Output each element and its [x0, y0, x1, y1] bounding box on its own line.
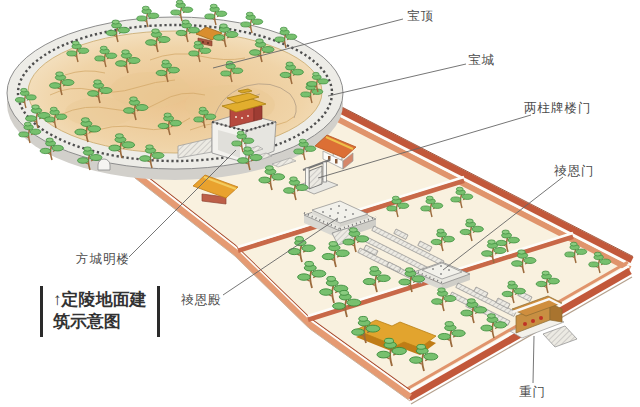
caption-line1: ↑定陵地面建 [53, 289, 147, 311]
ring-wall-arch-left [98, 159, 110, 170]
label-liangzhupailoumen: 两柱牌楼门 [524, 100, 592, 117]
label-baoding: 宝顶 [407, 8, 434, 25]
leader-line-chongmen [533, 336, 534, 383]
diagram-canvas [0, 0, 640, 407]
dingling-diagram: 宝顶 宝城 两柱牌楼门 祾恩门 方城明楼 祾恩殿 重门 ↑定陵地面建 筑示意图 [0, 0, 640, 407]
caption-line2: 筑示意图 [53, 311, 147, 333]
treasure-mound [7, 0, 343, 180]
label-chongmen: 重门 [519, 384, 546, 401]
leader-line-baocheng [328, 64, 466, 96]
label-fangchengminglou: 方城明楼 [76, 251, 130, 268]
label-lingendian: 祾恩殿 [181, 292, 222, 309]
label-baocheng: 宝城 [468, 52, 495, 69]
gate-stairs [543, 326, 577, 347]
diagram-caption: ↑定陵地面建 筑示意图 [40, 286, 160, 337]
label-lingenmen: 祾恩门 [554, 163, 595, 180]
